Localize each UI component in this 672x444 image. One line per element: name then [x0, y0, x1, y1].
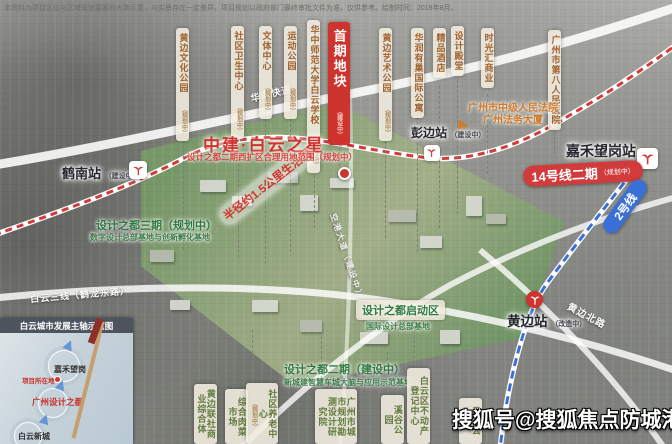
station-name: 嘉禾望岗站 [566, 143, 636, 159]
callout-text: 综合肉菜市场 [227, 397, 246, 437]
callout-status: （规划中） [250, 400, 256, 430]
map-stage: 本资料为项目区位与区域规划要素的大致示意，与实景存在一定差异，项目规划以政府部门… [0, 0, 672, 444]
callout-status: （规划中） [383, 106, 389, 136]
phase2-title: 设计之都二期（建设中） [284, 361, 405, 377]
metro-logo-icon [129, 161, 147, 179]
callout-status: （规划中） [263, 84, 269, 114]
metro-logo-icon [424, 145, 440, 161]
inset-baiyun-newtown-label: 白云新城 [18, 431, 50, 442]
callout-status: （规划中） [235, 104, 241, 134]
line-badge-text: 14号线二期 [531, 163, 598, 185]
project-location-dot [338, 167, 351, 180]
callout-food-market: 综合肉菜市场 [225, 389, 248, 444]
callout-shiguanghui-commercial: 时光汇商业 [481, 28, 494, 88]
inset-project-label: 项目所在地 [22, 375, 55, 385]
callout-text: 白云区不动产登记中心 [409, 376, 428, 436]
callout-status: （规划中） [288, 84, 294, 114]
callout-xigu-park: 溪谷公园 [381, 395, 404, 444]
station-name: 黄边站 [507, 314, 548, 329]
callout-text: 黄边文化公园 [178, 33, 188, 93]
callout-planning-institute: 广州市城市规划勘测设计研究院 [315, 389, 357, 444]
station-pengbian: 彭边站 （建设中） [411, 124, 485, 141]
station-henan: 鹤南站 （建设中） [62, 163, 140, 182]
callout-commercial-complex: 黄边联社商业综合体 [194, 384, 217, 444]
callout-text: 溪谷公园 [383, 405, 402, 435]
startzone-subtitle: 国际设计总部基地 [366, 321, 430, 332]
station-jiahewanggang: 嘉禾望岗站 [566, 141, 636, 161]
inset-jiahewanggang-label: 嘉禾望岗 [54, 364, 86, 375]
callout-elderly-care-center: 社区养老中心 （规划中） [246, 383, 278, 444]
callout-apartment: 华润有巢国际公寓 [411, 28, 424, 118]
phase2-subtitle: 新城建智慧车城大脑与应用示范基地 [284, 377, 412, 388]
callout-real-estate-registration-center: 白云区不动产登记中心 [407, 368, 430, 444]
callout-sports-culture-center: 文体中心 （规划中） [259, 26, 272, 119]
inset-axis-map: 白云城市发展主轴示意图 嘉禾望岗 项目所在地 广州设计之都 白云新城 [0, 318, 133, 444]
map-disclaimer: 本资料为项目区位与区域规划要素的大致示意，与实景存在一定差异，项目规划以政府部门… [4, 3, 457, 13]
callout-huangbian-culture-park: 黄边文化公园 （规划中） [176, 28, 189, 141]
callout-text: 社区养老中心 [258, 389, 277, 439]
watermark-sohu: 搜狐号@搜狐焦点防城港站 [452, 404, 672, 434]
callout-design-hall: 设计殿堂 [451, 26, 464, 76]
line-badge-status: （规划中） [599, 166, 634, 178]
callout-hotel: 精品酒店 [433, 28, 446, 78]
station-huangbian: 黄边站 （改造中） [507, 310, 586, 330]
phase3-title: 设计之都三期（规划中） [96, 217, 217, 233]
inset-title: 白云城市发展主轴示意图 [0, 318, 133, 333]
callout-text: 黄边联社商业综合体 [196, 389, 215, 439]
station-status: （改造中） [551, 321, 586, 328]
callout-text: 华润有巢国际公寓 [413, 33, 423, 113]
callout-text: 时光汇商业 [483, 33, 493, 83]
inset-design-city-label: 广州设计之都 [32, 396, 83, 408]
station-name: 鹤南站 [62, 166, 101, 181]
court-line1: 广州市中级人民法院 [468, 103, 558, 115]
callout-status: （规划中） [180, 106, 186, 136]
callout-text: 首期地块 [332, 29, 347, 89]
callout-text: 黄边艺术公园 [381, 33, 391, 93]
callout-sports-park: 运动公园 （规划中） [284, 26, 297, 119]
callout-text: 文体中心 [261, 31, 271, 71]
station-status: （建设中） [450, 132, 485, 139]
callout-community-health-center: 社区卫生中心 （规划中） [231, 26, 244, 139]
station-name: 彭边站 [411, 126, 447, 140]
callout-text: 精品酒店 [435, 33, 445, 73]
project-subtitle: 设计之都二期西扩区合理用地范围（规划中） [187, 151, 357, 163]
callout-text: 华中师范大学白云学校 [309, 25, 319, 125]
callout-first-phase-plot: 首期地块 （建设中） [328, 22, 350, 145]
callout-text: 社区卫生中心 [233, 31, 243, 91]
phase3-subtitle: 数字设计总部基地与创新孵化基地 [90, 232, 210, 243]
callout-text: 设计殿堂 [453, 31, 463, 71]
callout-art-park: 黄边艺术公园 （规划中） [379, 28, 392, 141]
startzone-title: 设计之都启动区 [356, 300, 445, 320]
callout-status: （建设中） [336, 108, 342, 138]
court-label: 广州市中级人民法院 广州法务大厦 [468, 103, 558, 126]
callout-text: 运动公园 [286, 31, 296, 71]
metro-logo-icon [526, 291, 543, 308]
callout-text: 广州市城市规划勘测设计研究院 [317, 397, 355, 437]
